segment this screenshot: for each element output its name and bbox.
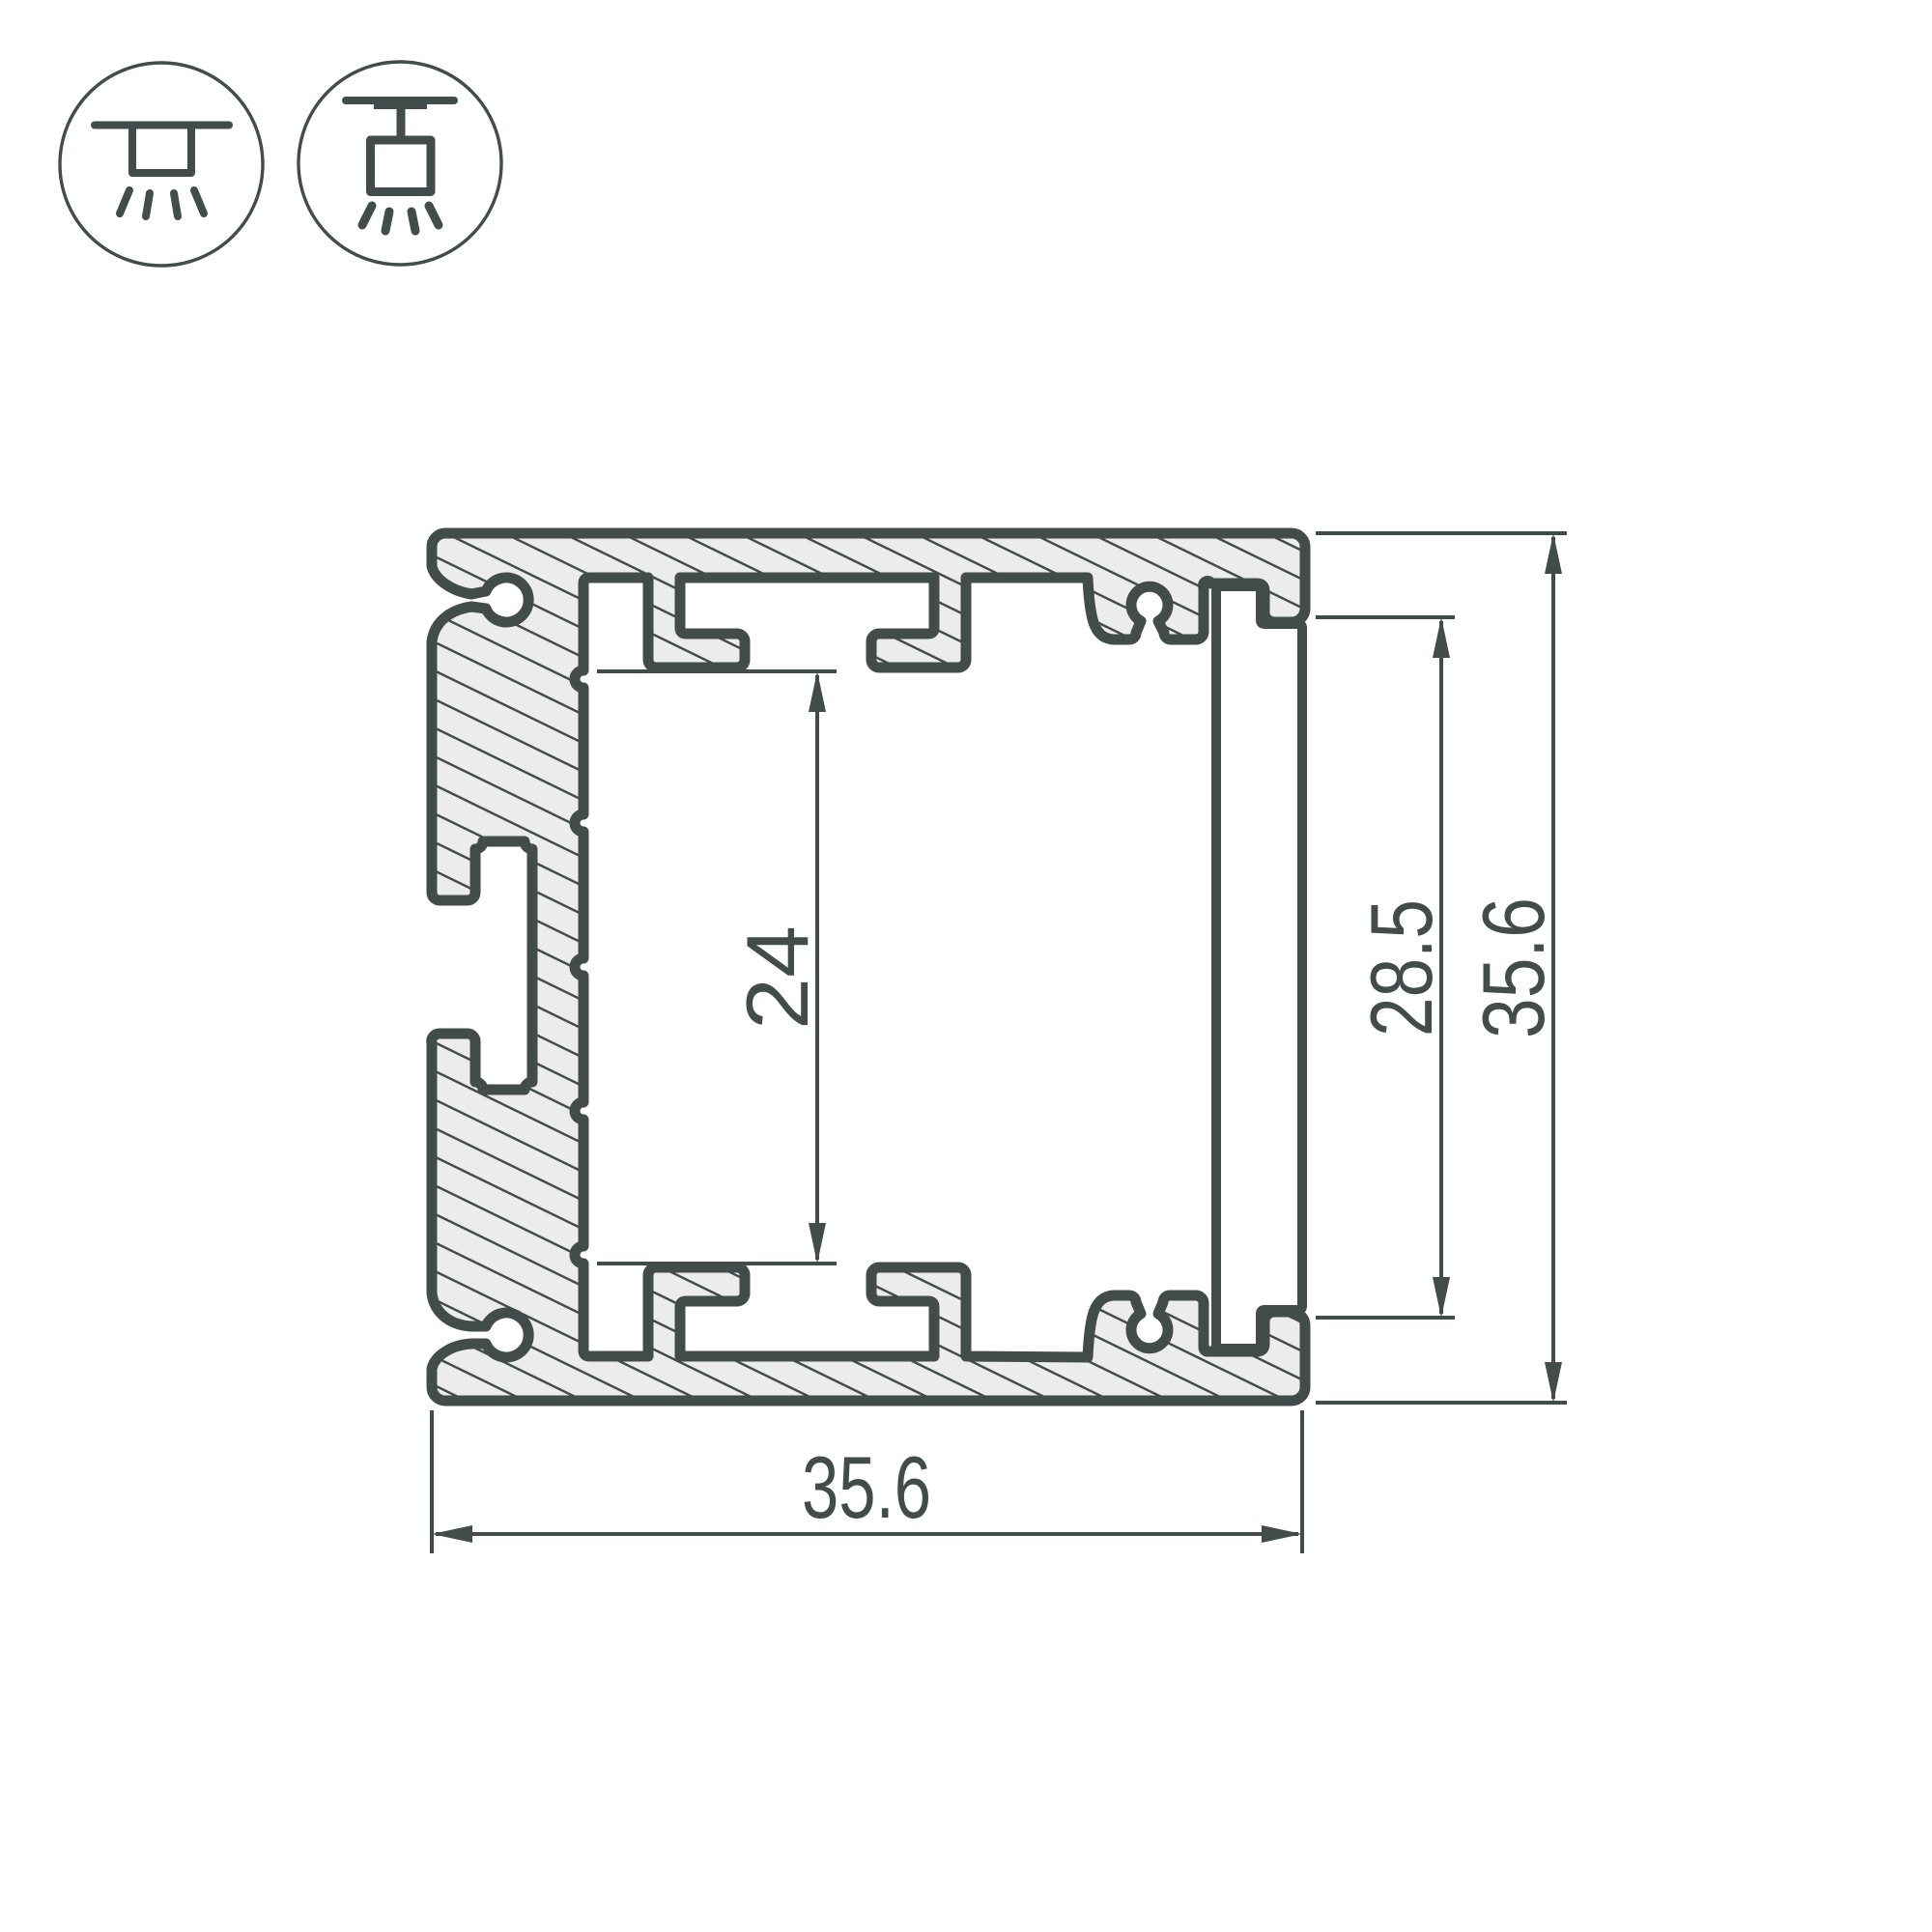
svg-text:35.6: 35.6: [802, 1439, 931, 1537]
svg-text:24: 24: [729, 925, 827, 1030]
svg-text:35.6: 35.6: [1465, 897, 1563, 1038]
svg-text:28.5: 28.5: [1353, 899, 1451, 1037]
